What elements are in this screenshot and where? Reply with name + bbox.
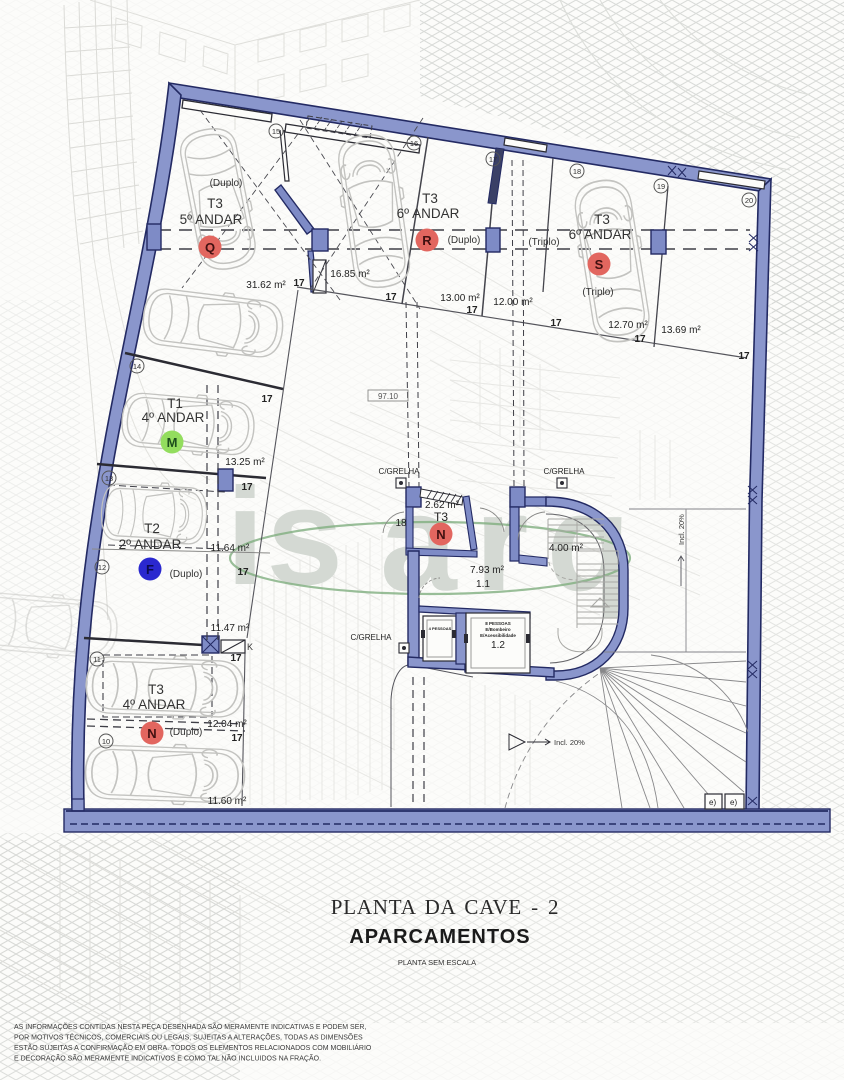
svg-text:T3: T3 <box>594 212 610 227</box>
svg-text:17: 17 <box>634 334 646 345</box>
svg-text:12: 12 <box>98 563 106 572</box>
svg-text:Incl. 20%: Incl. 20% <box>677 514 686 545</box>
svg-text:11.64 m²: 11.64 m² <box>211 543 250 554</box>
svg-text:17: 17 <box>241 482 253 493</box>
svg-text:12.04 m²: 12.04 m² <box>207 719 247 730</box>
svg-text:C/GRELHA: C/GRELHA <box>544 467 586 476</box>
svg-text:C/GRELHA: C/GRELHA <box>351 633 393 642</box>
svg-text:ESTÃO SUJEITAS A CONFIRMAÇÃO E: ESTÃO SUJEITAS A CONFIRMAÇÃO EM OBRA. TO… <box>14 1043 372 1052</box>
svg-text:10: 10 <box>102 737 110 746</box>
svg-text:17: 17 <box>230 653 242 664</box>
svg-text:POR MOTIVOS TÉCNICOS, COMERCIA: POR MOTIVOS TÉCNICOS, COMERCIAIS OU LEGA… <box>14 1033 363 1042</box>
svg-text:N: N <box>147 726 156 741</box>
svg-text:17: 17 <box>489 155 497 164</box>
svg-text:20: 20 <box>745 196 753 205</box>
svg-text:17: 17 <box>231 733 243 744</box>
svg-text:6º ANDAR: 6º ANDAR <box>569 227 632 242</box>
svg-text:17: 17 <box>466 305 478 316</box>
svg-text:Incl. 20%: Incl. 20% <box>554 738 585 747</box>
svg-text:T3: T3 <box>207 196 223 211</box>
svg-text:F: F <box>146 562 154 577</box>
svg-text:17: 17 <box>293 278 305 289</box>
svg-text:18: 18 <box>395 518 407 529</box>
svg-text:K: K <box>247 642 253 652</box>
svg-text:R: R <box>422 233 432 248</box>
svg-text:11.60 m²: 11.60 m² <box>208 796 247 807</box>
svg-text:17: 17 <box>237 567 249 578</box>
svg-text:13.00 m²: 13.00 m² <box>440 293 480 304</box>
svg-text:M: M <box>167 435 178 450</box>
svg-text:T2: T2 <box>144 521 160 536</box>
svg-text:15: 15 <box>272 127 280 136</box>
svg-text:17: 17 <box>385 292 397 303</box>
svg-text:4 PESSOAS: 4 PESSOAS <box>429 626 452 631</box>
svg-text:T3: T3 <box>422 191 438 206</box>
svg-text:PLANTA SEM ESCALA: PLANTA SEM ESCALA <box>398 958 476 967</box>
svg-text:17: 17 <box>738 351 750 362</box>
svg-text:12.70 m²: 12.70 m² <box>608 320 648 331</box>
svg-text:13.25 m²: 13.25 m² <box>225 457 265 468</box>
svg-text:16.85 m²: 16.85 m² <box>330 269 370 280</box>
svg-text:Q: Q <box>205 240 215 255</box>
svg-text:13.69 m²: 13.69 m² <box>661 325 701 336</box>
svg-text:31.62 m²: 31.62 m² <box>246 280 286 291</box>
svg-text:(Duplo): (Duplo) <box>448 235 481 246</box>
svg-text:6º ANDAR: 6º ANDAR <box>397 206 460 221</box>
svg-text:5º ANDAR: 5º ANDAR <box>180 212 243 227</box>
svg-text:4.00 m²: 4.00 m² <box>549 543 584 554</box>
svg-text:1.2: 1.2 <box>491 640 505 651</box>
svg-text:12.00 m²: 12.00 m² <box>493 297 533 308</box>
svg-text:(Duplo): (Duplo) <box>210 178 243 189</box>
svg-text:(Triplo): (Triplo) <box>582 287 613 298</box>
svg-text:11: 11 <box>93 655 101 664</box>
svg-text:AS INFORMAÇÕES CONTIDAS NESTA: AS INFORMAÇÕES CONTIDAS NESTA PEÇA DESEN… <box>14 1022 366 1031</box>
svg-text:T1: T1 <box>167 396 183 411</box>
svg-text:17: 17 <box>261 394 273 405</box>
svg-text:17: 17 <box>550 318 562 329</box>
svg-text:(Triplo): (Triplo) <box>528 237 559 248</box>
svg-text:T3: T3 <box>148 682 164 697</box>
svg-text:1.1: 1.1 <box>476 579 490 590</box>
svg-text:PLANTA DA CAVE - 2: PLANTA DA CAVE - 2 <box>331 895 560 919</box>
svg-text:E DECORAÇÃO SÃO MERAMENTE INDI: E DECORAÇÃO SÃO MERAMENTE INDICATIVOS E … <box>14 1054 321 1063</box>
svg-text:E/Acessibilidade: E/Acessibilidade <box>480 633 516 638</box>
svg-text:e): e) <box>730 798 737 807</box>
svg-text:18: 18 <box>573 167 581 176</box>
svg-text:7.93 m²: 7.93 m² <box>470 565 505 576</box>
svg-text:14: 14 <box>133 362 141 371</box>
svg-text:e): e) <box>709 798 716 807</box>
svg-text:19: 19 <box>657 182 665 191</box>
svg-text:T3: T3 <box>434 510 448 524</box>
svg-text:8 PESSOAS: 8 PESSOAS <box>485 621 511 626</box>
svg-text:S: S <box>595 257 604 272</box>
svg-text:4º ANDAR: 4º ANDAR <box>142 410 205 425</box>
svg-text:4º ANDAR: 4º ANDAR <box>123 697 186 712</box>
svg-text:2º ANDAR: 2º ANDAR <box>119 537 182 552</box>
svg-text:97.10: 97.10 <box>378 392 399 401</box>
svg-text:16: 16 <box>410 139 418 148</box>
svg-text:E/Bombeiro: E/Bombeiro <box>485 627 511 632</box>
svg-text:(Duplo): (Duplo) <box>170 727 203 738</box>
svg-text:13: 13 <box>105 474 113 483</box>
svg-text:C/GRELHA: C/GRELHA <box>379 467 421 476</box>
svg-text:11.47 m²: 11.47 m² <box>211 623 250 634</box>
svg-text:APARCAMENTOS: APARCAMENTOS <box>349 926 530 948</box>
svg-text:(Duplo): (Duplo) <box>170 569 203 580</box>
svg-text:N: N <box>436 527 445 542</box>
